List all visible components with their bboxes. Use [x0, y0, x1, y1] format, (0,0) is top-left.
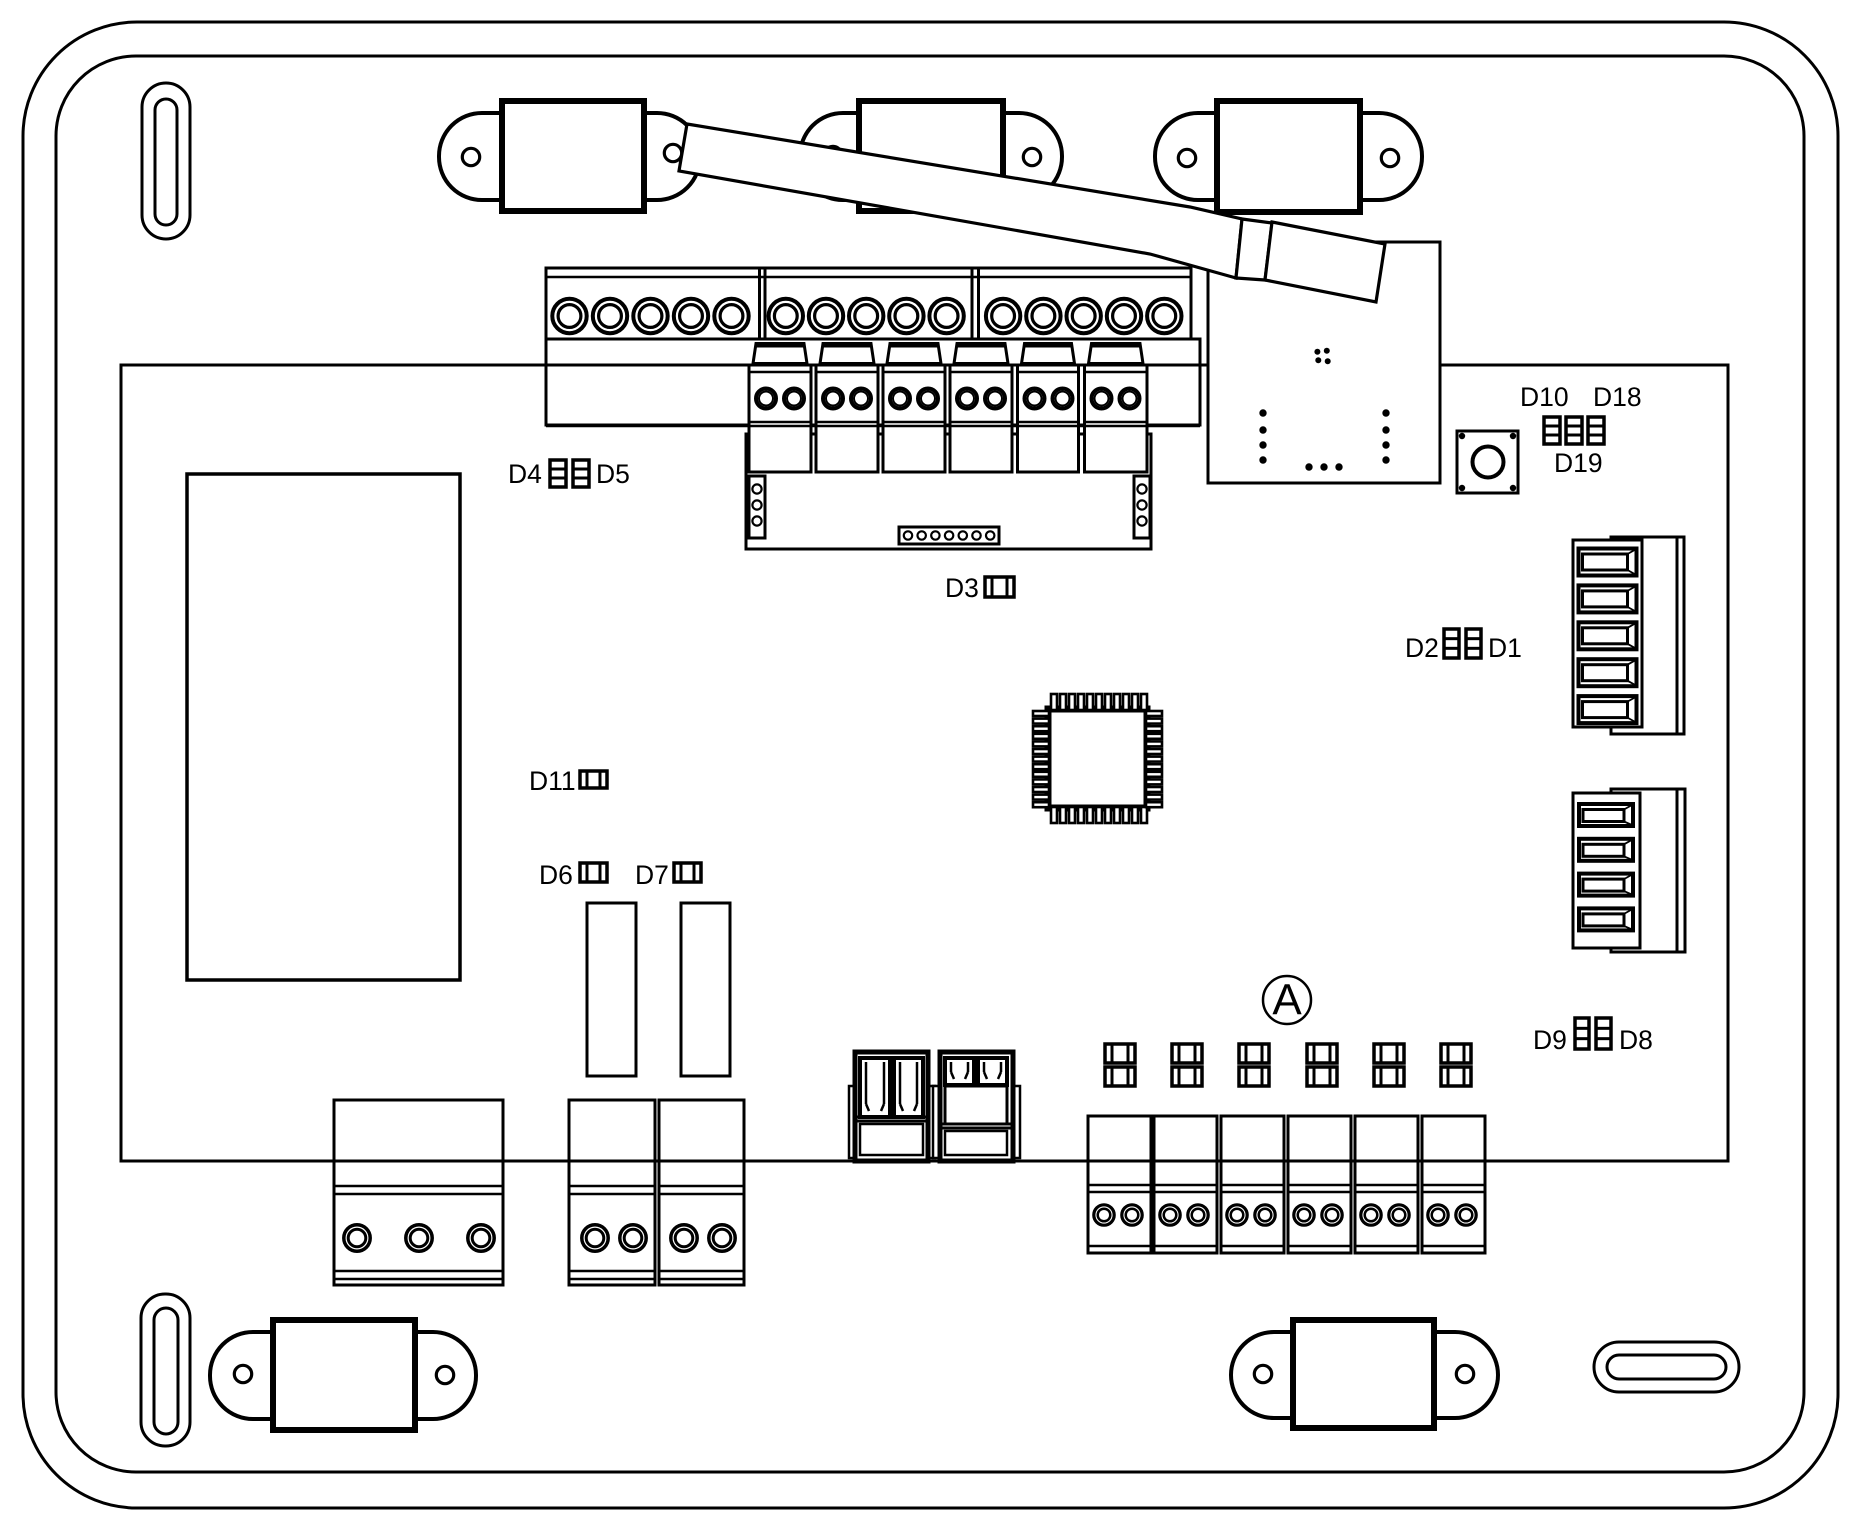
svg-text:D10: D10 — [1520, 382, 1569, 412]
svg-text:D19: D19 — [1554, 448, 1603, 478]
svg-text:D11: D11 — [529, 766, 576, 796]
svg-text:D6: D6 — [539, 860, 573, 890]
svg-text:D8: D8 — [1619, 1025, 1653, 1055]
svg-text:D2: D2 — [1405, 633, 1439, 663]
svg-text:D9: D9 — [1533, 1025, 1567, 1055]
svg-text:D7: D7 — [635, 860, 669, 890]
svg-text:D4: D4 — [508, 459, 542, 489]
svg-text:D18: D18 — [1593, 382, 1642, 412]
svg-text:D3: D3 — [945, 573, 979, 603]
svg-text:D5: D5 — [596, 459, 630, 489]
svg-text:D1: D1 — [1488, 633, 1522, 663]
svg-text:A: A — [1272, 976, 1302, 1025]
